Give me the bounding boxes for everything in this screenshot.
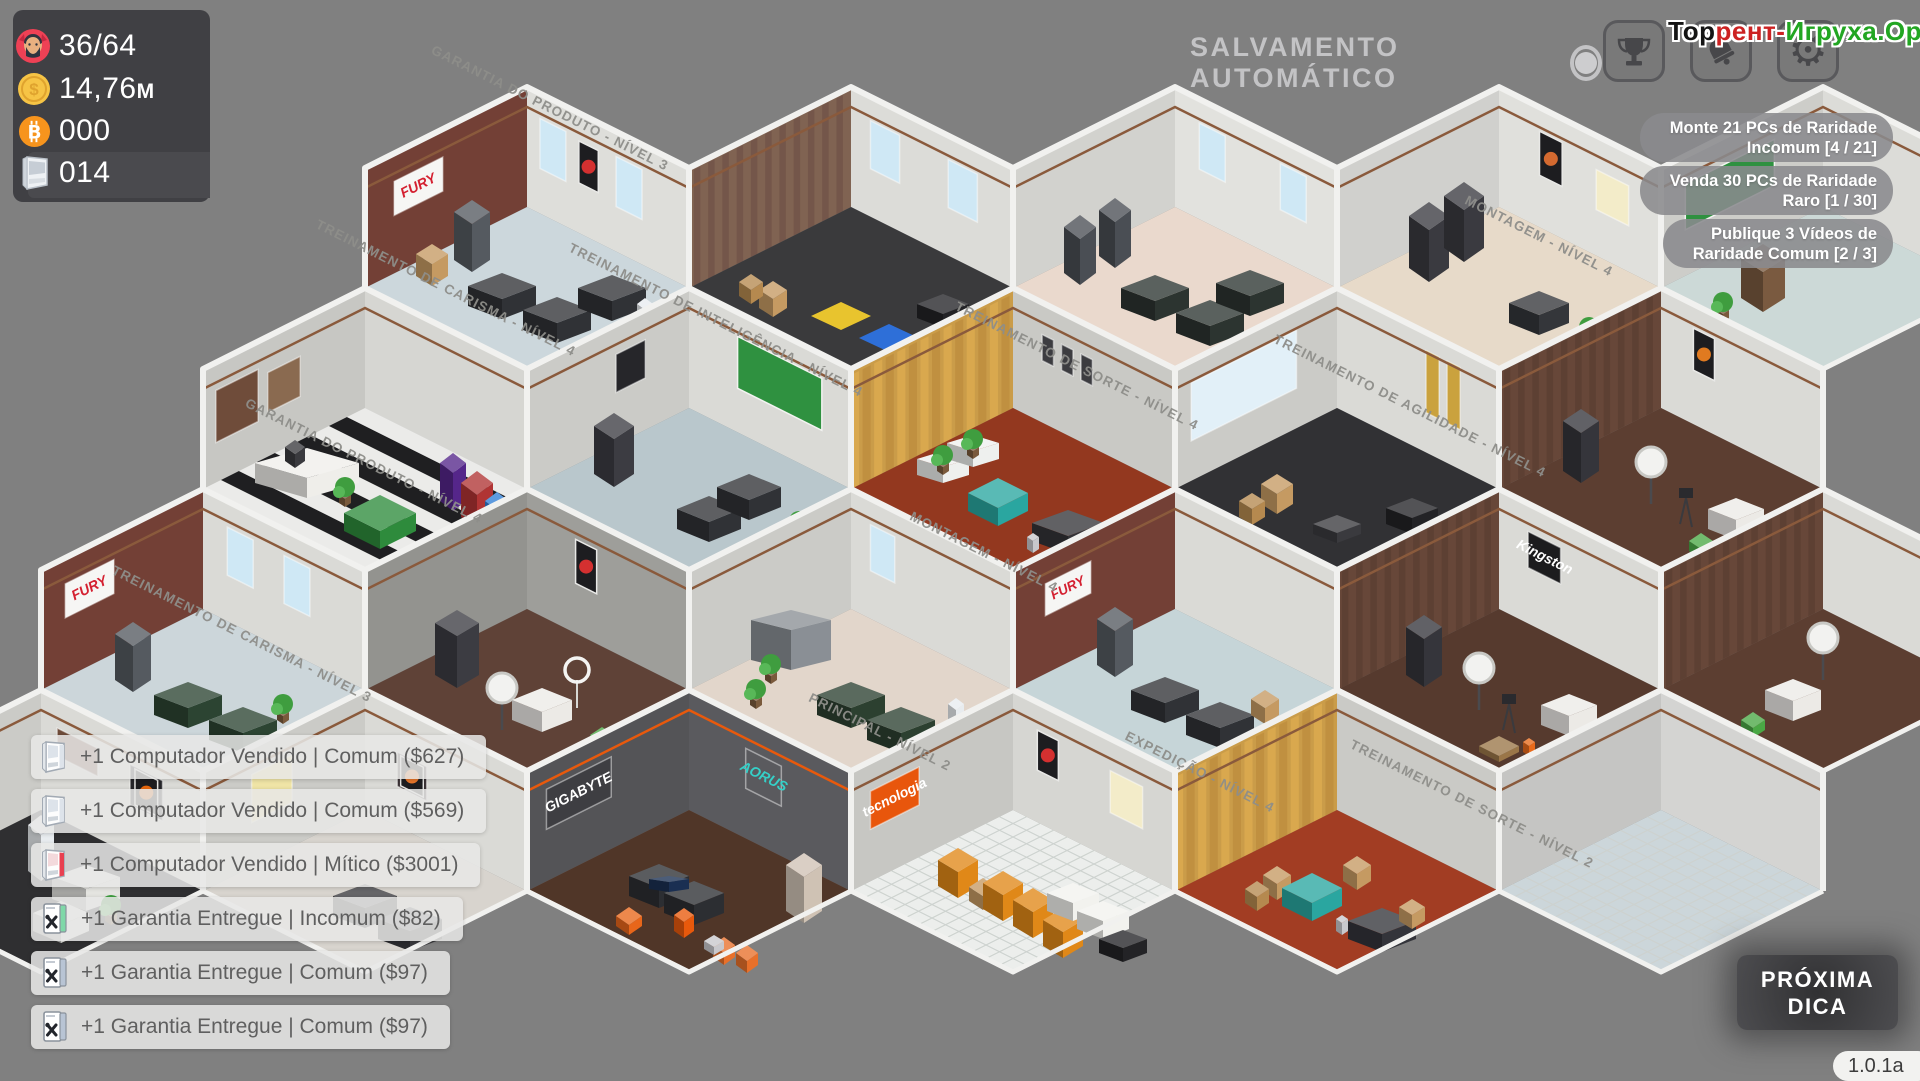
trophy-icon (1615, 32, 1653, 70)
stats-panel: 36/64 $ 14,76M B 000 (13, 10, 210, 202)
watermark-part-2: рент- (1716, 16, 1786, 46)
money-coin-icon: $ (13, 72, 59, 106)
autosave-indicator: SALVAMENTO AUTOMÁTICO (1190, 32, 1602, 94)
svg-text:B: B (27, 122, 41, 143)
quest-item-1[interactable]: Monte 21 PCs de RaridadeIncomum [4 / 21] (1640, 113, 1893, 162)
warranty-doc-icon (41, 956, 69, 990)
notification-text: +1 Garantia Entregue | Comum ($97) (81, 961, 428, 985)
notification-text: +1 Computador Vendido | Comum ($627) (80, 745, 464, 769)
bitcoin-icon: B (13, 115, 59, 148)
quest-item-3[interactable]: Publique 3 Vídeos deRaridade Comum [2 / … (1663, 219, 1893, 268)
quest-item-2[interactable]: Venda 30 PCs de RaridadeRaro [1 / 30] (1640, 166, 1893, 215)
autosave-spinner-icon (1570, 45, 1602, 81)
quest-line2: Incomum [4 / 21] (1747, 138, 1877, 158)
warranty-doc-icon (41, 1010, 69, 1044)
svg-text:$: $ (29, 80, 39, 99)
achievements-button[interactable] (1603, 20, 1665, 82)
watermark-part-3: Игруха.Орг (1785, 16, 1920, 46)
quest-list: Monte 21 PCs de RaridadeIncomum [4 / 21]… (1640, 113, 1893, 268)
quest-line2: Raro [1 / 30] (1783, 191, 1877, 211)
version-text: 1.0.1a (1848, 1055, 1904, 1078)
notification-feed: +1 Computador Vendido | Comum ($627)+1 C… (31, 735, 486, 1049)
next-tip-button[interactable]: PRÓXIMA DICA (1737, 955, 1898, 1030)
notification-item-5: +1 Garantia Entregue | Comum ($97) (31, 951, 450, 995)
pc-case-icon (13, 155, 59, 191)
computers-count: 014 (59, 156, 111, 190)
quest-line2: Raridade Comum [2 / 3] (1693, 244, 1877, 264)
watermark-part-1: Тор (1668, 16, 1716, 46)
pc-case-icon (41, 740, 68, 774)
notification-text: +1 Computador Vendido | Mítico ($3001) (80, 853, 458, 877)
pc-case-icon (41, 848, 68, 882)
notification-text: +1 Computador Vendido | Comum ($569) (80, 799, 464, 823)
watermark: Торрент-Игруха.Орг (1668, 16, 1920, 47)
autosave-label: SALVAMENTO AUTOMÁTICO (1190, 32, 1557, 94)
notification-text: +1 Garantia Entregue | Incomum ($82) (81, 907, 441, 931)
money-value: 14,76M (59, 72, 155, 106)
notification-item-1: +1 Computador Vendido | Comum ($627) (31, 735, 486, 779)
bitcoin-count: 000 (59, 114, 111, 148)
notification-item-2: +1 Computador Vendido | Comum ($569) (31, 789, 486, 833)
notification-text: +1 Garantia Entregue | Comum ($97) (81, 1015, 428, 1039)
notification-item-4: +1 Garantia Entregue | Incomum ($82) (31, 897, 463, 941)
quest-line1: Publique 3 Vídeos de (1711, 224, 1877, 244)
next-tip-line2: DICA (1788, 993, 1848, 1020)
quest-line1: Monte 21 PCs de Raridade (1670, 118, 1877, 138)
warranty-doc-icon (41, 902, 69, 936)
next-tip-line1: PRÓXIMA (1761, 966, 1874, 993)
notification-item-3: +1 Computador Vendido | Mítico ($3001) (31, 843, 480, 887)
staff-avatar-icon (13, 28, 59, 64)
pc-case-icon (41, 794, 68, 828)
version-badge: 1.0.1a (1833, 1051, 1920, 1081)
notification-item-6: +1 Garantia Entregue | Comum ($97) (31, 1005, 450, 1049)
quest-line1: Venda 30 PCs de Raridade (1670, 171, 1877, 191)
staff-count: 36/64 (59, 29, 137, 63)
